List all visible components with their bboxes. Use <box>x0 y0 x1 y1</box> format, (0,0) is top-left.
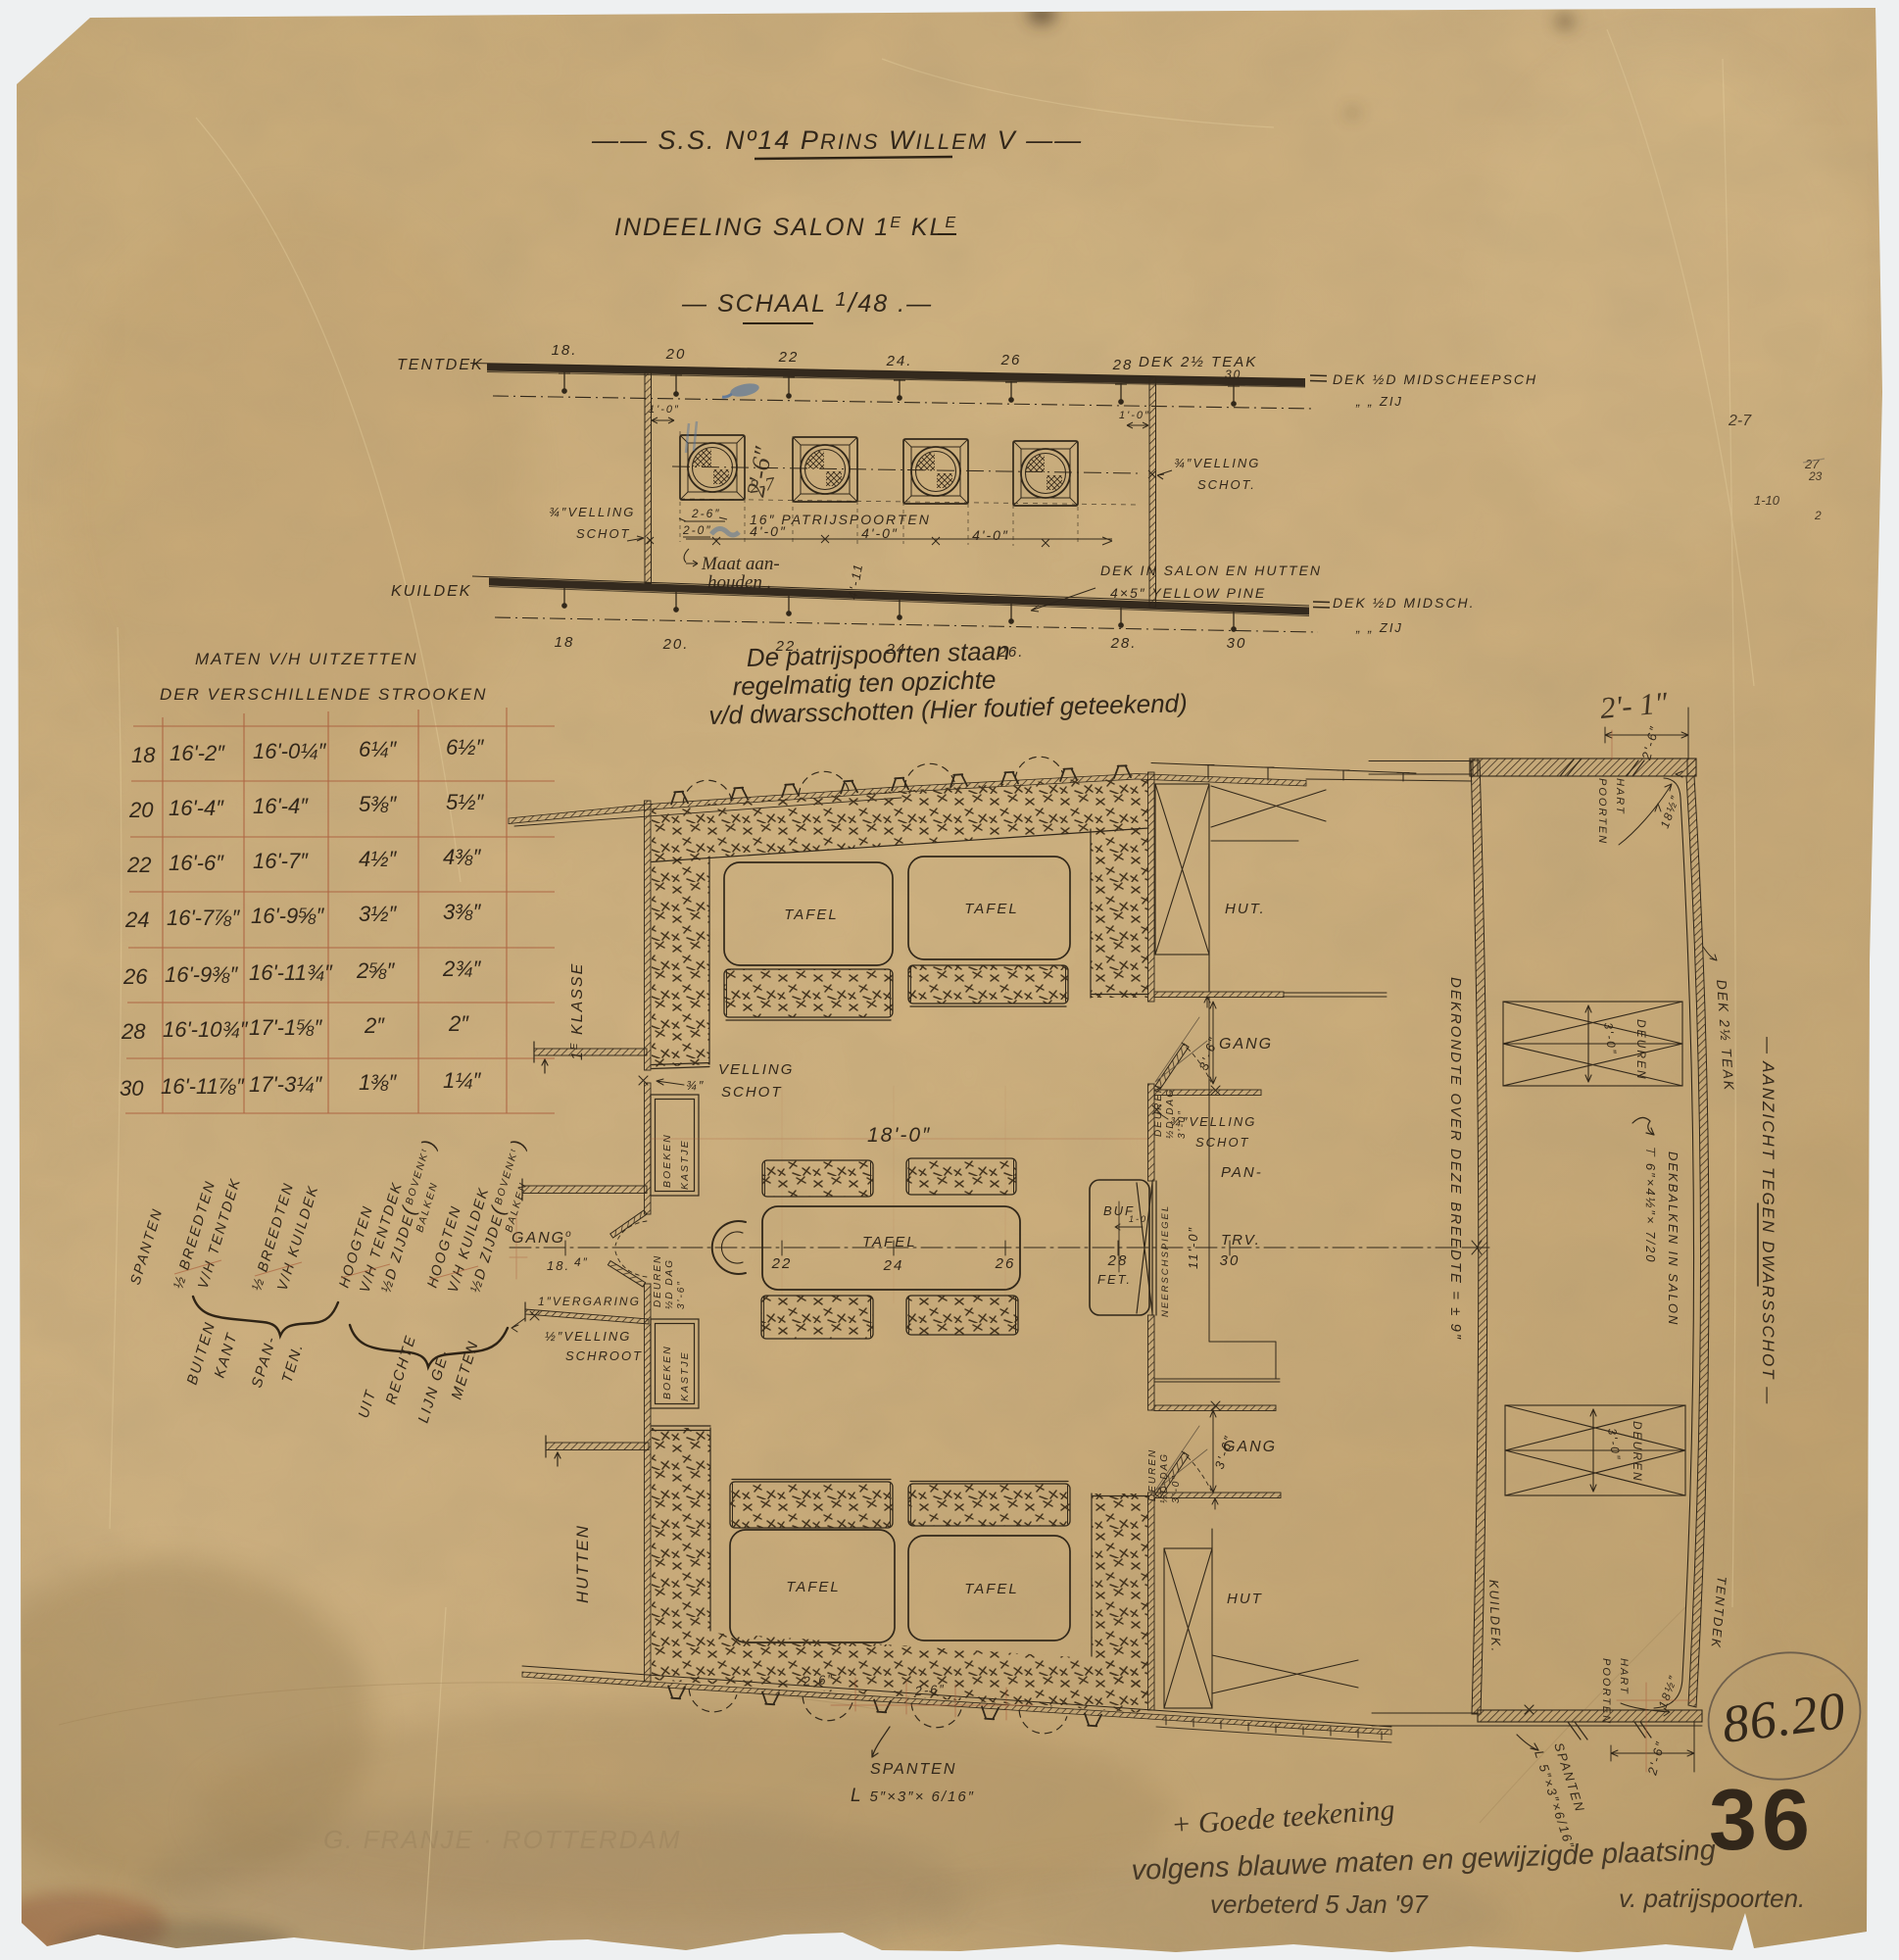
svg-text:16'-10¾″: 16'-10¾″ <box>163 1017 249 1042</box>
svg-text:16'-9⅝″: 16'-9⅝″ <box>251 904 325 928</box>
svg-text:Maat aan-: Maat aan- <box>701 554 780 574</box>
svg-text:18.: 18. <box>552 342 578 359</box>
svg-text:2-6″: 2-6″ <box>913 1682 946 1698</box>
svg-text:SCHOT: SCHOT <box>576 526 631 541</box>
svg-text:½D DAG: ½D DAG <box>664 1258 675 1309</box>
svg-text:18: 18 <box>555 634 575 651</box>
svg-text:TAFEL: TAFEL <box>964 1581 1019 1597</box>
svg-text:HUT: HUT <box>1227 1591 1263 1607</box>
svg-text:DEUREN: DEUREN <box>1631 1421 1644 1483</box>
svg-text:HUTTEN: HUTTEN <box>573 1524 592 1603</box>
svg-text:TENTDEK: TENTDEK <box>397 357 484 373</box>
svg-text:TAFEL: TAFEL <box>964 901 1019 917</box>
svg-text:HART: HART <box>1618 1658 1630 1695</box>
svg-text:23: 23 <box>1808 469 1823 483</box>
svg-text:¾″VELLING: ¾″VELLING <box>1174 456 1260 470</box>
svg-text:— SCHAAL 1/48 .—: — SCHAAL 1/48 .— <box>681 287 933 318</box>
svg-text:verbeterd 5 Jan '97: verbeterd 5 Jan '97 <box>1210 1889 1429 1919</box>
svg-text:16'-2″: 16'-2″ <box>170 741 225 765</box>
svg-text:1⅜″: 1⅜″ <box>359 1070 398 1095</box>
svg-text:MATEN V/H UITZETTEN: MATEN V/H UITZETTEN <box>195 650 418 668</box>
svg-text:1-0: 1-0 <box>1129 1214 1147 1224</box>
svg-text:30: 30 <box>1220 1252 1241 1269</box>
svg-text:16'-11⅞″: 16'-11⅞″ <box>161 1074 245 1099</box>
svg-text:4⅜″: 4⅜″ <box>443 845 482 869</box>
svg-text:3⅜″: 3⅜″ <box>443 900 482 924</box>
svg-text:GANG: GANG <box>1223 1439 1277 1455</box>
svg-text:16'-7″: 16'-7″ <box>253 849 309 873</box>
svg-text:POORTEN: POORTEN <box>1596 778 1608 845</box>
svg-text:28: 28 <box>1107 1252 1129 1269</box>
svg-text:17'-1⅝″: 17'-1⅝″ <box>249 1015 323 1040</box>
svg-text:2″: 2″ <box>364 1013 385 1038</box>
svg-text:SCHOT: SCHOT <box>721 1084 783 1101</box>
svg-text:16'-0¼″: 16'-0¼″ <box>253 739 327 763</box>
svg-text:5½″: 5½″ <box>446 790 485 814</box>
svg-text:26: 26 <box>1000 352 1022 368</box>
svg-text:KASTJE: KASTJE <box>679 1139 691 1190</box>
svg-text:26: 26 <box>122 964 148 989</box>
svg-text:SCHOT: SCHOT <box>1195 1135 1250 1150</box>
svg-text:INDEELING SALON 1E KLE: INDEELING SALON 1E KLE <box>614 214 957 241</box>
svg-text:1-10: 1-10 <box>1754 493 1780 508</box>
svg-text:30: 30 <box>1227 635 1247 652</box>
svg-text:v. patrijspoorten.: v. patrijspoorten. <box>1619 1884 1805 1913</box>
svg-text:POORTEN: POORTEN <box>1600 1658 1612 1725</box>
svg-text:DEK ½D MIDSCHEEPSCH: DEK ½D MIDSCHEEPSCH <box>1333 371 1537 387</box>
svg-text:KUILDEK: KUILDEK <box>391 583 471 600</box>
svg-text:17'-3¼″: 17'-3¼″ <box>249 1072 323 1097</box>
svg-text:26: 26 <box>995 1255 1016 1272</box>
svg-text:3'-6″: 3'-6″ <box>676 1280 687 1309</box>
svg-text:NEERSCHSPIEGEL: NEERSCHSPIEGEL <box>1160 1204 1171 1317</box>
svg-text:DER VERSCHILLENDE STROOKEN: DER VERSCHILLENDE STROOKEN <box>160 685 487 704</box>
svg-text:SCHOT.: SCHOT. <box>1197 477 1256 492</box>
svg-text:TAFEL: TAFEL <box>862 1234 917 1250</box>
svg-text:G. FRANJE · ROTTERDAM: G. FRANJE · ROTTERDAM <box>323 1825 682 1854</box>
svg-text:16″ PATRIJSPOORTEN: 16″ PATRIJSPOORTEN <box>750 512 931 527</box>
svg-text:24.: 24. <box>886 353 913 369</box>
svg-text:4½″: 4½″ <box>359 847 398 871</box>
svg-text:24: 24 <box>883 1257 904 1274</box>
svg-text:5⅜″: 5⅜″ <box>359 792 398 816</box>
svg-text:⊤ 6″×4½″× 7/20: ⊤ 6″×4½″× 7/20 <box>1643 1145 1658 1264</box>
svg-text:SPANTEN: SPANTEN <box>870 1761 956 1778</box>
svg-text:3½″: 3½″ <box>359 902 398 926</box>
svg-text:4″: 4″ <box>574 1255 589 1269</box>
svg-text:28.: 28. <box>1110 635 1138 652</box>
svg-text:1'-0″: 1'-0″ <box>1119 410 1150 421</box>
svg-text:GANG: GANG <box>1219 1036 1273 1053</box>
svg-text:18'-0″: 18'-0″ <box>867 1124 931 1147</box>
svg-text:1¼″: 1¼″ <box>443 1068 482 1093</box>
svg-text:11'-0″: 11'-0″ <box>1186 1226 1200 1269</box>
svg-text:DEK IN SALON EN HUTTEN: DEK IN SALON EN HUTTEN <box>1100 563 1322 578</box>
svg-text:20: 20 <box>128 798 154 822</box>
svg-text:3'-0″: 3'-0″ <box>1171 1474 1182 1503</box>
svg-text:2: 2 <box>1814 509 1822 522</box>
svg-text:22: 22 <box>126 853 151 877</box>
svg-text:BOEKEN: BOEKEN <box>661 1345 673 1399</box>
svg-text:28: 28 <box>121 1019 146 1044</box>
svg-text:16'-9⅜″: 16'-9⅜″ <box>165 962 239 987</box>
svg-text:6¼″: 6¼″ <box>359 737 398 761</box>
svg-text:L 5″×3″× 6/16″: L 5″×3″× 6/16″ <box>851 1786 975 1806</box>
svg-text:2⅝″: 2⅝″ <box>356 958 396 983</box>
svg-text:¾″VELLING: ¾″VELLING <box>549 505 635 519</box>
svg-text:2-7: 2-7 <box>749 473 777 498</box>
svg-text:24: 24 <box>124 907 149 932</box>
svg-text:18: 18 <box>131 743 156 767</box>
svg-text:22: 22 <box>771 1255 793 1272</box>
svg-text:4'-0″: 4'-0″ <box>972 527 1009 543</box>
svg-text:2¾″: 2¾″ <box>442 956 482 981</box>
svg-text:KASTJE: KASTJE <box>679 1350 691 1401</box>
svg-text:HUT.: HUT. <box>1225 901 1266 917</box>
svg-text:2-6″: 2-6″ <box>691 507 721 520</box>
svg-text:20: 20 <box>665 346 687 363</box>
svg-text:— AANZICHT TEGEN DWARSSCHOT —: — AANZICHT TEGEN DWARSSCHOT — <box>1759 1036 1777 1405</box>
svg-text:2-0″: 2-0″ <box>682 523 712 537</box>
svg-text:¾″VELLING: ¾″VELLING <box>1170 1114 1256 1129</box>
svg-text:KUILDEK.: KUILDEK. <box>1486 1580 1504 1654</box>
svg-text:BOEKEN: BOEKEN <box>661 1133 673 1188</box>
svg-text:2″: 2″ <box>448 1011 469 1036</box>
svg-text:—— S.S. Nº14 PRINS WILLEM V ——: —— S.S. Nº14 PRINS WILLEM V —— <box>591 125 1083 155</box>
svg-text:2-7: 2-7 <box>1728 413 1752 429</box>
svg-text:DEKBALKEN IN SALON: DEKBALKEN IN SALON <box>1666 1151 1680 1326</box>
svg-text:20.: 20. <box>662 636 690 653</box>
svg-text:1″VERGARING: 1″VERGARING <box>538 1295 641 1308</box>
svg-text:4'-0″: 4'-0″ <box>861 525 899 541</box>
svg-text:TRV.: TRV. <box>1221 1232 1261 1249</box>
svg-text:TAFEL: TAFEL <box>786 1579 841 1595</box>
svg-text:PAN-: PAN- <box>1221 1164 1263 1181</box>
svg-text:28: 28 <box>1112 357 1134 373</box>
svg-text:„ „ ZIJ: „ „ ZIJ <box>1355 620 1403 635</box>
svg-text:4×5″ YELLOW PINE: 4×5″ YELLOW PINE <box>1110 585 1266 601</box>
svg-text:16'-4″: 16'-4″ <box>253 794 309 818</box>
svg-text:„ „ ZIJ: „ „ ZIJ <box>1355 394 1403 409</box>
svg-text:1'-0″: 1'-0″ <box>649 404 680 416</box>
svg-text:22: 22 <box>778 349 800 366</box>
svg-text:36: 36 <box>1709 1771 1815 1868</box>
svg-text:DEUREN: DEUREN <box>1634 1019 1648 1081</box>
svg-text:DEKRONDTE OVER DEZE BREEDTE =: DEKRONDTE OVER DEZE BREEDTE = ± 9″ <box>1447 977 1464 1341</box>
svg-text:DEUREN: DEUREN <box>653 1254 663 1307</box>
svg-text:16'-6″: 16'-6″ <box>169 851 224 875</box>
svg-text:16'-4″: 16'-4″ <box>169 796 224 820</box>
svg-text:DEK ½D MIDSCH.: DEK ½D MIDSCH. <box>1333 595 1475 611</box>
svg-text:16'-11¾″: 16'-11¾″ <box>249 960 333 985</box>
svg-text:TAFEL: TAFEL <box>784 906 839 923</box>
svg-text:18.: 18. <box>547 1258 570 1273</box>
svg-text:SCHROOT: SCHROOT <box>565 1348 643 1363</box>
svg-text:¾″: ¾″ <box>686 1078 705 1093</box>
svg-text:2-6″: 2-6″ <box>802 1672 834 1689</box>
svg-text:½″VELLING: ½″VELLING <box>545 1329 631 1344</box>
svg-text:30: 30 <box>120 1076 144 1101</box>
svg-text:16'-7⅞″: 16'-7⅞″ <box>167 906 241 930</box>
svg-text:GANGo: GANGo <box>511 1229 573 1247</box>
svg-text:30: 30 <box>1225 367 1242 381</box>
svg-text:VELLING: VELLING <box>718 1061 794 1078</box>
svg-text:FET.: FET. <box>1097 1272 1132 1287</box>
svg-text:HART: HART <box>1614 778 1626 815</box>
svg-text:2'- 1″: 2'- 1″ <box>1599 685 1670 725</box>
svg-text:6½″: 6½″ <box>446 735 485 759</box>
